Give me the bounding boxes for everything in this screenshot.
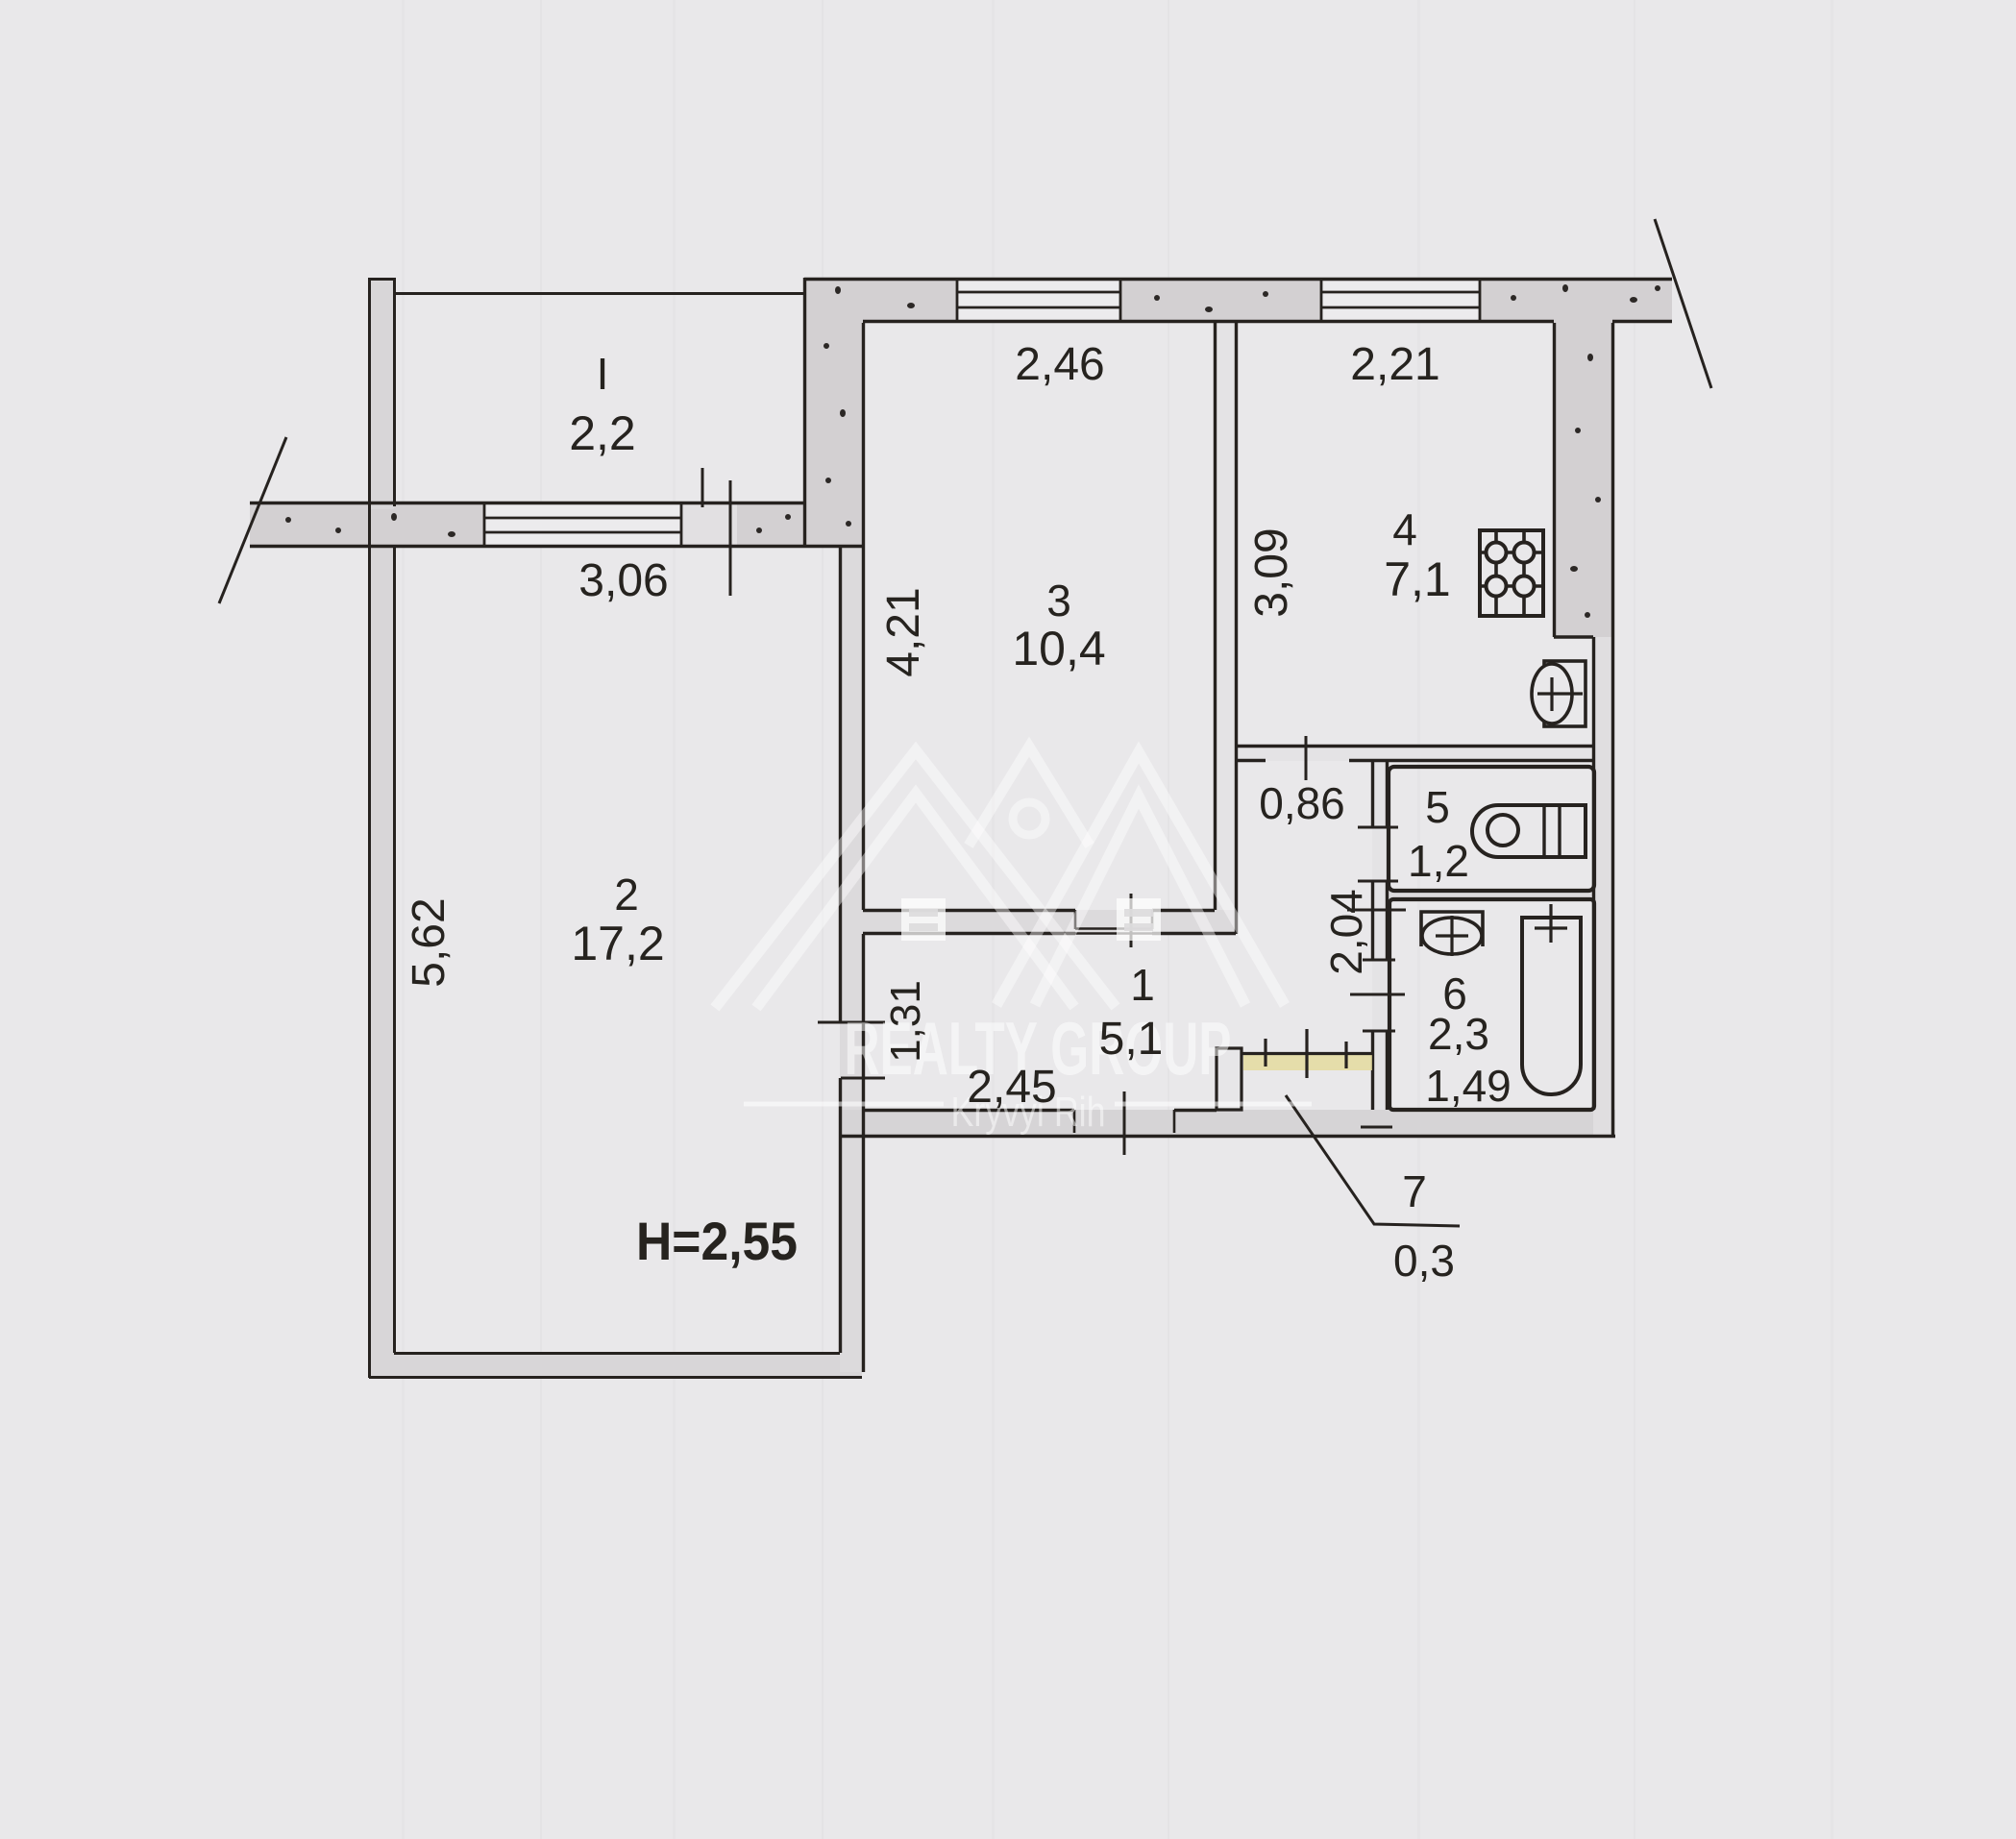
svg-text:0,3: 0,3 xyxy=(1393,1236,1455,1286)
svg-text:3,06: 3,06 xyxy=(578,555,668,606)
svg-text:1,2: 1,2 xyxy=(1408,836,1469,886)
svg-text:I: I xyxy=(597,349,609,399)
svg-text:2: 2 xyxy=(614,870,639,919)
svg-text:3: 3 xyxy=(1046,576,1071,625)
svg-text:4: 4 xyxy=(1392,504,1417,554)
svg-text:2,46: 2,46 xyxy=(1015,339,1104,390)
svg-text:2,45: 2,45 xyxy=(967,1062,1056,1113)
svg-text:17,2: 17,2 xyxy=(571,917,664,970)
svg-text:10,4: 10,4 xyxy=(1012,622,1105,675)
svg-text:5,1: 5,1 xyxy=(1099,1014,1164,1065)
svg-text:2,3: 2,3 xyxy=(1428,1009,1489,1059)
svg-text:7: 7 xyxy=(1402,1166,1427,1216)
svg-text:H=2,55: H=2,55 xyxy=(636,1211,798,1271)
svg-text:1,49: 1,49 xyxy=(1425,1061,1512,1111)
svg-text:1,31: 1,31 xyxy=(882,980,929,1063)
svg-text:4,21: 4,21 xyxy=(878,587,929,676)
svg-text:7,1: 7,1 xyxy=(1384,552,1451,606)
svg-text:3,09: 3,09 xyxy=(1246,527,1297,617)
svg-text:0,86: 0,86 xyxy=(1259,778,1345,828)
svg-text:2,04: 2,04 xyxy=(1321,889,1371,975)
svg-text:5,62: 5,62 xyxy=(404,897,455,987)
svg-text:2,21: 2,21 xyxy=(1350,339,1439,390)
svg-text:5: 5 xyxy=(1425,782,1450,832)
svg-text:1: 1 xyxy=(1130,960,1155,1010)
svg-text:2,2: 2,2 xyxy=(569,406,636,460)
